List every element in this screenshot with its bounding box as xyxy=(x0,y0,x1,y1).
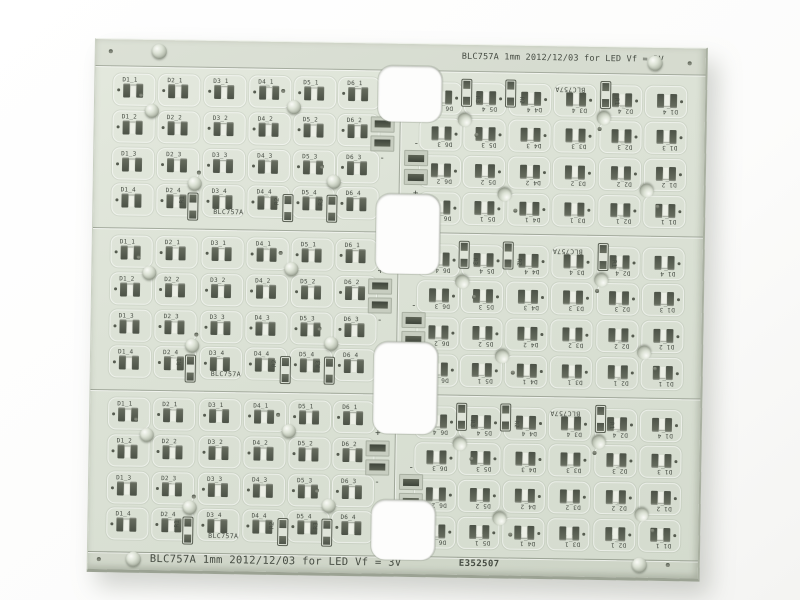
polarity-dot xyxy=(116,162,119,165)
led-footprint xyxy=(429,288,449,302)
led-designator-label: D3_3 xyxy=(569,304,584,311)
led-footprint xyxy=(343,411,363,425)
polarity-dot xyxy=(335,526,338,529)
led-designator-label: D1_4 xyxy=(658,432,673,439)
led-pad-left xyxy=(625,93,632,107)
led-designator-label: D4_1 xyxy=(520,540,535,547)
polarity-dot xyxy=(251,200,254,203)
led-pad-right xyxy=(181,84,188,98)
led-pad-center xyxy=(664,95,670,107)
fiducial-dot xyxy=(511,371,515,375)
polarity-dot xyxy=(291,525,294,528)
polarity-dot xyxy=(117,125,120,128)
led-footprint xyxy=(341,521,361,535)
led-footprint xyxy=(298,447,318,461)
led-pad-center xyxy=(307,323,313,335)
polarity-dot xyxy=(113,324,116,327)
fiducial-dot xyxy=(513,209,517,213)
polarity-dot xyxy=(498,170,501,173)
resistor-pad-bottom xyxy=(502,405,509,413)
led-pad-center xyxy=(351,360,357,372)
led-pad-right xyxy=(132,320,139,334)
polarity-dot xyxy=(203,414,206,417)
polarity-dot xyxy=(452,295,455,298)
led-designator-label: D5_4 xyxy=(477,429,492,436)
mounting-hole xyxy=(322,499,336,513)
led-pad-left xyxy=(573,490,580,504)
led-footprint xyxy=(606,453,626,467)
led-pad-center xyxy=(351,324,357,336)
led-pad-center xyxy=(304,521,310,533)
polarity-dot xyxy=(293,415,296,418)
resistor-pad-top xyxy=(463,97,470,105)
led-pad-right xyxy=(226,159,233,173)
led-pad-left xyxy=(621,328,628,342)
fiducial-dot xyxy=(134,417,138,421)
led-pad-left xyxy=(488,127,495,141)
led-pad-center xyxy=(309,249,315,261)
led-footprint xyxy=(120,282,140,296)
led-pad-center xyxy=(482,165,488,177)
mounting-hole xyxy=(185,338,199,352)
polarity-dot xyxy=(205,289,208,292)
tooling-hole-dot xyxy=(109,49,113,53)
led-designator-label: D6_3 xyxy=(432,464,447,471)
polarity-dot xyxy=(294,327,297,330)
board-silkscreen-label: BLC757A xyxy=(555,85,585,93)
led-pad-center xyxy=(170,409,176,421)
resistor-footprint xyxy=(500,403,511,431)
led-footprint xyxy=(342,448,362,462)
resistor-footprint xyxy=(461,79,472,107)
resistor-designator-label: R2 xyxy=(274,198,281,205)
led-pad-center xyxy=(572,167,578,179)
led-pad-center xyxy=(569,328,575,340)
polarity-dot xyxy=(298,91,301,94)
mounting-hole xyxy=(287,100,301,114)
led-pad-center xyxy=(482,128,488,140)
led-footprint xyxy=(474,201,494,215)
polarity-dot xyxy=(494,421,497,424)
led-pad-center xyxy=(305,448,311,460)
pcb-board: D1_1D2_1D3_1D4_1D5_1D6_1D1_2D2_2D3_2D4_2… xyxy=(94,227,395,394)
resistor-pad-bottom xyxy=(597,407,604,415)
led-pad-right xyxy=(176,408,183,422)
fiducial-dot xyxy=(281,89,285,93)
led-pad-center xyxy=(524,328,530,340)
negative-pad xyxy=(365,459,389,475)
led-pad-center xyxy=(618,167,624,179)
power-pad-group: +- xyxy=(366,267,395,324)
fiducial-dot xyxy=(472,295,476,299)
led-footprint xyxy=(119,355,139,369)
led-pad-center xyxy=(220,123,226,135)
led-pad-center xyxy=(438,127,444,139)
mounting-hole xyxy=(284,262,298,276)
fiducial-dot xyxy=(650,529,654,533)
led-pad-right xyxy=(223,357,230,371)
pcb-board: D1_1D2_1D3_1D4_1D5_1D6_1D1_2D2_2D3_2D4_2… xyxy=(97,65,398,232)
led-pad-left xyxy=(528,452,535,466)
led-pad-right xyxy=(225,247,232,261)
led-pad-left xyxy=(485,363,492,377)
led-pad-center xyxy=(613,454,619,466)
led-designator-label: D6_3 xyxy=(435,302,450,309)
led-pad-right xyxy=(355,485,362,499)
mounting-hole xyxy=(637,346,651,360)
polarity-dot xyxy=(588,135,591,138)
led-designator-label: D6_2 xyxy=(434,339,449,346)
led-pad-center xyxy=(661,293,667,305)
led-pad-center xyxy=(220,160,226,172)
led-pad-center xyxy=(524,365,530,377)
led-footprint xyxy=(253,447,273,461)
polarity-dot xyxy=(495,332,498,335)
led-designator-label: D1_1 xyxy=(658,380,673,387)
led-footprint xyxy=(565,128,585,142)
resistor-pad-top xyxy=(599,261,606,269)
power-pad-group: +- xyxy=(402,139,431,196)
polarity-dot xyxy=(538,458,541,461)
led-pad-center xyxy=(566,527,572,539)
polarity-dot xyxy=(589,99,592,102)
led-pad-center xyxy=(218,285,224,297)
led-pad-left xyxy=(531,290,538,304)
led-pad-left xyxy=(664,454,671,468)
led-pad-left xyxy=(527,526,534,540)
led-pad-center xyxy=(311,87,317,99)
led-pad-left xyxy=(442,252,449,266)
resistor-pad-bottom xyxy=(600,245,607,253)
led-pad-center xyxy=(438,164,444,176)
led-footprint xyxy=(344,359,364,373)
led-pad-right xyxy=(177,320,184,334)
led-footprint xyxy=(654,292,674,306)
led-pad-right xyxy=(224,284,231,298)
fiducial-dot xyxy=(279,251,283,255)
led-footprint xyxy=(116,517,136,531)
led-pad-right xyxy=(271,123,278,137)
resistor-designator-label: R1 xyxy=(610,260,617,267)
led-pad-center xyxy=(216,410,222,422)
led-footprint xyxy=(257,248,277,262)
led-footprint xyxy=(654,256,674,270)
led-pad-center xyxy=(433,488,439,500)
led-pad-center xyxy=(264,249,270,261)
led-pad-left xyxy=(619,453,626,467)
led-designator-label: D2_1 xyxy=(613,379,628,386)
resistor-pad-bottom xyxy=(284,212,291,220)
resistor-pad-top xyxy=(189,195,196,203)
led-designator-label: D3_4 xyxy=(569,268,584,275)
fiducial-dot xyxy=(469,457,473,461)
led-footprint xyxy=(209,409,229,423)
led-footprint xyxy=(302,248,322,262)
led-designator-label: D2_2 xyxy=(614,342,629,349)
polarity-dot xyxy=(676,372,679,375)
led-designator-label: D2_1 xyxy=(616,217,631,224)
pad-inner xyxy=(369,463,385,470)
led-pad-center xyxy=(435,326,441,338)
led-pad-right xyxy=(221,446,228,460)
polarity-dot xyxy=(630,423,633,426)
mounting-hole xyxy=(140,428,154,442)
led-footprint xyxy=(210,321,230,335)
board-silkscreen-label: BLC757A xyxy=(208,532,238,540)
polarity-dot xyxy=(540,333,543,336)
resistor-designator-label: R2 xyxy=(271,360,278,367)
led-pad-right xyxy=(130,482,137,496)
led-pad-center xyxy=(567,490,573,502)
led-designator-label: D3_4 xyxy=(572,106,587,113)
polarity-dot xyxy=(206,200,209,203)
led-pad-center xyxy=(309,197,315,209)
polarity-dot xyxy=(248,414,251,417)
led-designator-label: D2_3 xyxy=(617,143,632,150)
led-pad-right xyxy=(226,122,233,136)
polarity-dot xyxy=(160,251,163,254)
polarity-dot xyxy=(251,252,254,255)
led-pad-right xyxy=(316,123,323,137)
led-designator-label: D2_4 xyxy=(618,107,633,114)
polarity-dot xyxy=(111,449,114,452)
positive-pad xyxy=(404,169,428,185)
resistor-designator-label: R1 xyxy=(608,422,615,429)
resistor-designator-label: R3 xyxy=(312,522,319,529)
polarity-dot xyxy=(250,289,253,292)
resistor-designator-label: R1 xyxy=(176,358,183,365)
polarity-dot xyxy=(297,165,300,168)
polarity-dot xyxy=(455,133,458,136)
resistor-footprint xyxy=(595,405,606,433)
led-footprint xyxy=(304,86,324,100)
resistor-pad-bottom xyxy=(282,374,289,382)
polarity-dot xyxy=(117,88,120,91)
led-footprint xyxy=(167,158,187,172)
led-footprint xyxy=(563,254,583,268)
led-pad-center xyxy=(436,289,442,301)
polarity-dot xyxy=(201,524,204,527)
led-pad-center xyxy=(567,453,573,465)
polarity-dot xyxy=(585,334,588,337)
polarity-dot xyxy=(497,259,500,262)
led-pad-left xyxy=(622,255,629,269)
polarity-dot xyxy=(451,369,454,372)
led-pad-left xyxy=(573,453,580,467)
polarity-dot xyxy=(631,334,634,337)
pcb-panel: BLC757A 1mm 2012/12/03 for LED Vf = 3V B… xyxy=(87,38,708,582)
led-pad-center xyxy=(570,255,576,267)
led-pad-left xyxy=(486,253,493,267)
led-pad-center xyxy=(262,323,268,335)
led-footprint xyxy=(475,164,495,178)
pad-inner xyxy=(403,479,419,486)
fiducial-dot xyxy=(137,255,141,259)
resistor-designator-label: R3 xyxy=(315,360,322,367)
pad-inner xyxy=(370,444,386,451)
polarity-dot xyxy=(679,136,682,139)
led-pad-left xyxy=(441,362,448,376)
led-pad-right xyxy=(134,194,141,208)
led-pad-center xyxy=(169,483,175,495)
led-pad-center xyxy=(660,330,666,342)
led-designator-label: D6_3 xyxy=(437,140,452,147)
pad-inner xyxy=(408,174,424,181)
led-pad-center xyxy=(352,287,358,299)
led-footprint xyxy=(611,166,631,180)
resistor-pad-top xyxy=(279,520,286,528)
polarity-dot xyxy=(202,488,205,491)
led-pad-right xyxy=(357,359,364,373)
led-footprint xyxy=(565,165,585,179)
led-pad-center xyxy=(217,322,223,334)
led-pad-center xyxy=(481,202,487,214)
led-pad-left xyxy=(487,201,494,215)
polarity-dot xyxy=(493,494,496,497)
positive-pad xyxy=(368,278,392,294)
led-pad-center xyxy=(260,448,266,460)
led-pad-right xyxy=(221,483,228,497)
led-footprint xyxy=(344,323,364,337)
polarity-dot xyxy=(162,126,165,129)
led-pad-center xyxy=(127,284,133,296)
led-footprint xyxy=(605,527,625,541)
led-footprint xyxy=(253,484,273,498)
led-designator-label: D1_1 xyxy=(661,218,676,225)
led-pad-center xyxy=(124,446,130,458)
led-pad-center xyxy=(310,124,316,136)
resistor-footprint xyxy=(280,356,291,384)
led-pad-right xyxy=(360,124,367,138)
led-pad-center xyxy=(260,485,266,497)
minus-mark: - xyxy=(397,463,425,471)
led-pad-left xyxy=(669,130,676,144)
led-designator-label: D5_4 xyxy=(479,267,494,274)
led-pad-center xyxy=(173,247,179,259)
fiducial-dot xyxy=(194,333,198,337)
led-footprint xyxy=(519,202,539,216)
led-pad-right xyxy=(269,285,276,299)
mounting-hole xyxy=(492,511,506,525)
polarity-dot xyxy=(204,326,207,329)
led-pad-center xyxy=(172,284,178,296)
led-pad-left xyxy=(530,327,537,341)
led-pad-right xyxy=(227,85,234,99)
polarity-dot xyxy=(542,260,545,263)
led-pad-right xyxy=(178,283,185,297)
led-pad-right xyxy=(180,121,187,135)
fiducial-dot xyxy=(653,367,657,371)
polarity-dot xyxy=(675,424,678,427)
led-designator-label: D1_1 xyxy=(656,542,671,549)
led-pad-right xyxy=(175,482,182,496)
led-designator-label: D5_1 xyxy=(477,377,492,384)
polarity-dot xyxy=(340,254,343,257)
polarity-dot xyxy=(454,170,457,173)
polarity-dot xyxy=(676,335,679,338)
led-pad-left xyxy=(482,525,489,539)
led-pad-center xyxy=(307,359,313,371)
panel-cutout xyxy=(375,193,440,274)
led-footprint xyxy=(347,124,367,138)
led-pad-center xyxy=(221,86,227,98)
polarity-dot xyxy=(449,494,452,497)
polarity-dot xyxy=(253,127,256,130)
led-pad-center xyxy=(528,93,534,105)
led-footprint xyxy=(345,286,365,300)
led-pad-right xyxy=(175,445,182,459)
led-footprint xyxy=(428,325,448,339)
led-footprint xyxy=(346,197,366,211)
led-pad-center xyxy=(261,411,267,423)
led-pad-left xyxy=(533,165,540,179)
led-footprint xyxy=(214,85,234,99)
negative-pad xyxy=(401,312,425,328)
led-footprint xyxy=(213,159,233,173)
led-pad-center xyxy=(657,529,663,541)
led-footprint xyxy=(122,157,142,171)
led-designator-label: D3_1 xyxy=(565,540,580,547)
polarity-dot xyxy=(449,457,452,460)
led-pad-left xyxy=(624,129,631,143)
polarity-dot xyxy=(292,452,295,455)
led-footprint xyxy=(347,161,367,175)
polarity-dot xyxy=(115,250,118,253)
serial-number-text: E352507 xyxy=(459,559,500,570)
led-pad-right xyxy=(361,87,368,101)
polarity-dot xyxy=(450,421,453,424)
polarity-dot xyxy=(156,450,159,453)
resistor-pad-bottom xyxy=(458,405,465,413)
led-pad-center xyxy=(263,286,269,298)
led-designator-label: D3_1 xyxy=(567,378,582,385)
led-pad-right xyxy=(135,121,142,135)
polarity-dot xyxy=(247,488,250,491)
resistor-designator-label: R2 xyxy=(518,97,525,104)
led-footprint xyxy=(606,490,626,504)
polarity-dot xyxy=(632,297,635,300)
led-pad-left xyxy=(670,94,677,108)
led-designator-label: D1_4 xyxy=(663,108,678,115)
led-pad-center xyxy=(125,409,131,421)
polarity-dot xyxy=(159,288,162,291)
fiducial-dot xyxy=(508,533,512,537)
led-pad-center xyxy=(658,455,664,467)
polarity-dot xyxy=(492,531,495,534)
led-designator-label: D4_2 xyxy=(523,341,538,348)
resistor-pad-bottom xyxy=(328,213,335,221)
led-pad-left xyxy=(666,329,673,343)
led-pad-center xyxy=(262,359,268,371)
led-designator-label: D4_3 xyxy=(526,142,541,149)
led-footprint xyxy=(426,487,446,501)
mounting-hole xyxy=(188,176,202,190)
resistor-pad-top xyxy=(328,197,335,205)
led-footprint xyxy=(431,163,451,177)
led-pad-left xyxy=(534,92,541,106)
resistor-pad-bottom xyxy=(326,375,333,383)
minus-mark: - xyxy=(366,316,394,324)
polarity-dot xyxy=(544,98,547,101)
polarity-dot xyxy=(453,207,456,210)
led-pad-center xyxy=(174,122,180,134)
resistor-footprint xyxy=(600,81,611,109)
polarity-dot xyxy=(499,133,502,136)
polarity-dot xyxy=(453,259,456,262)
led-pad-left xyxy=(439,487,446,501)
resistor-designator-label: R3 xyxy=(474,96,481,103)
led-designator-label: D3_2 xyxy=(565,503,580,510)
